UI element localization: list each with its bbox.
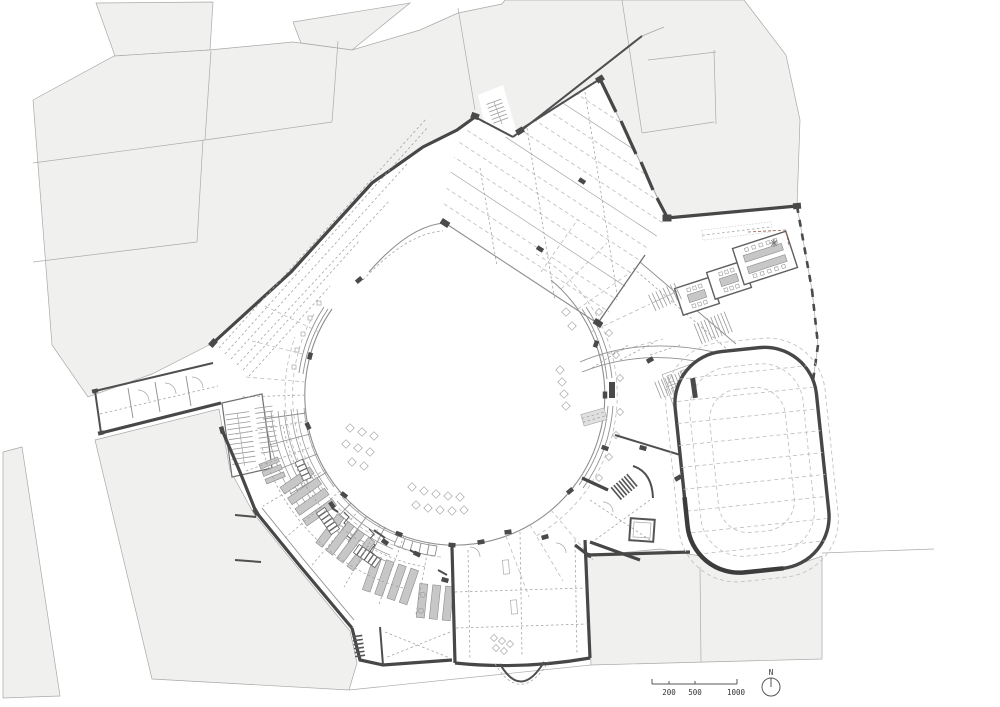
scale-label-200: 200 — [662, 688, 676, 697]
scale-label-500: 500 — [688, 688, 702, 697]
floor-plan-page: 200 500 1000 N — [0, 0, 1000, 707]
lift-shaft — [629, 518, 654, 542]
plant-icon — [770, 239, 778, 247]
floor-plan-drawing: 200 500 1000 N — [0, 0, 1000, 707]
refectory-tables — [416, 583, 453, 620]
scale-label-1000: 1000 — [727, 688, 746, 697]
north-label: N — [769, 668, 774, 677]
